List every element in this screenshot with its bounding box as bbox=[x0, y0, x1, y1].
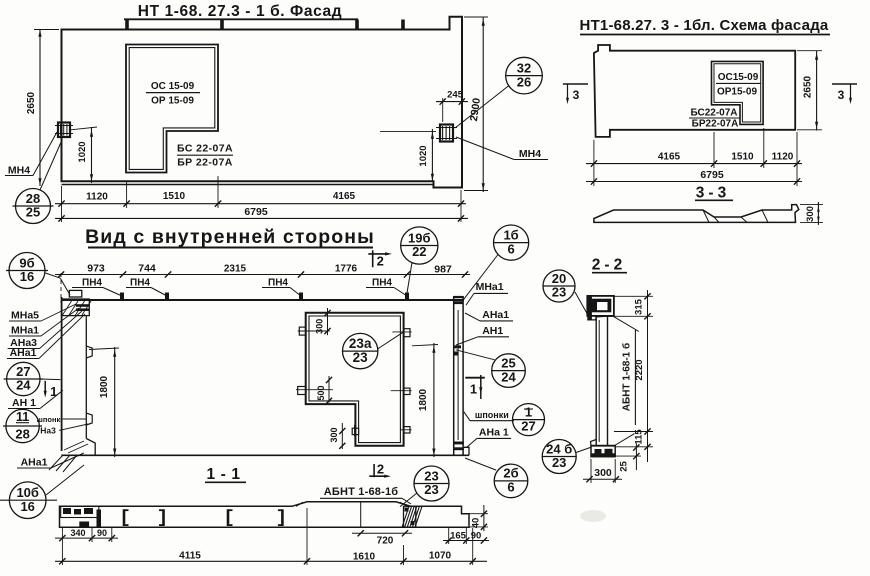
svg-text:6795: 6795 bbox=[700, 169, 724, 181]
svg-text:1-1: 1-1 bbox=[207, 466, 246, 483]
svg-text:23: 23 bbox=[552, 455, 566, 470]
svg-text:40: 40 bbox=[471, 518, 482, 529]
svg-text:973: 973 bbox=[87, 262, 105, 274]
svg-text:АНа 1: АНа 1 bbox=[479, 427, 509, 439]
svg-text:АБНТ 1-68-1 б: АБНТ 1-68-1 б bbox=[621, 343, 633, 411]
svg-text:24: 24 bbox=[501, 369, 516, 384]
svg-text:23: 23 bbox=[424, 482, 438, 497]
svg-text:АНа1: АНа1 bbox=[10, 347, 37, 359]
svg-text:2: 2 bbox=[377, 462, 384, 477]
svg-text:3-3: 3-3 bbox=[696, 185, 730, 202]
svg-text:24 б: 24 б bbox=[546, 441, 572, 456]
svg-text:6795: 6795 bbox=[244, 206, 268, 218]
svg-text:МН4: МН4 bbox=[519, 148, 541, 160]
svg-text:2650: 2650 bbox=[26, 91, 37, 114]
svg-text:1776: 1776 bbox=[335, 263, 358, 274]
svg-text:115: 115 bbox=[633, 429, 644, 445]
svg-text:БС 22-07А: БС 22-07А bbox=[177, 143, 233, 155]
svg-text:300: 300 bbox=[594, 467, 612, 479]
svg-text:315: 315 bbox=[634, 298, 645, 315]
svg-text:11: 11 bbox=[16, 410, 29, 424]
svg-text:1800: 1800 bbox=[99, 375, 110, 398]
svg-text:2б: 2б bbox=[503, 466, 518, 481]
svg-text:ОС 15-09: ОС 15-09 bbox=[151, 81, 195, 92]
svg-text:4165: 4165 bbox=[333, 191, 356, 202]
svg-text:340: 340 bbox=[70, 528, 85, 538]
svg-text:БС22-07А: БС22-07А bbox=[690, 108, 737, 119]
svg-text:ОР 15-09: ОР 15-09 bbox=[151, 96, 194, 107]
svg-text:23: 23 bbox=[552, 285, 566, 300]
svg-text:90: 90 bbox=[97, 528, 107, 538]
svg-text:32: 32 bbox=[517, 60, 531, 75]
svg-text:ПН4: ПН4 bbox=[82, 278, 102, 289]
svg-text:1800: 1800 bbox=[418, 388, 429, 411]
svg-text:26: 26 bbox=[517, 74, 531, 89]
svg-text:ПН4: ПН4 bbox=[268, 278, 288, 289]
svg-text:1120: 1120 bbox=[86, 192, 108, 203]
svg-text:1: 1 bbox=[525, 404, 532, 419]
svg-text:1070: 1070 bbox=[429, 551, 452, 562]
svg-text:АН 1: АН 1 bbox=[12, 397, 36, 409]
svg-text:2220: 2220 bbox=[634, 359, 645, 380]
svg-text:987: 987 bbox=[434, 264, 452, 276]
svg-text:БР 22-07А: БР 22-07А bbox=[177, 157, 233, 169]
svg-text:1510: 1510 bbox=[731, 152, 754, 163]
svg-text:Вид с внутренней стороны: Вид с внутренней стороны bbox=[85, 226, 375, 248]
svg-text:22: 22 bbox=[412, 244, 426, 259]
svg-text:28: 28 bbox=[15, 427, 29, 442]
svg-text:300: 300 bbox=[315, 319, 325, 334]
svg-text:1020: 1020 bbox=[77, 141, 88, 162]
svg-text:БР22-07А: БР22-07А bbox=[692, 119, 739, 130]
svg-text:шпонкi: шпонкi bbox=[37, 415, 63, 424]
svg-text:19б: 19б bbox=[408, 230, 431, 245]
svg-text:4165: 4165 bbox=[658, 152, 681, 163]
svg-text:2650: 2650 bbox=[803, 75, 814, 98]
svg-text:ОР15-09: ОР15-09 bbox=[717, 87, 757, 98]
svg-text:23а: 23а bbox=[349, 336, 372, 351]
svg-text:24: 24 bbox=[16, 378, 31, 393]
svg-text:1120: 1120 bbox=[772, 152, 794, 163]
svg-text:6: 6 bbox=[507, 241, 514, 256]
svg-text:25: 25 bbox=[619, 461, 630, 472]
svg-text:шпонки: шпонки bbox=[475, 410, 509, 420]
svg-text:4115: 4115 bbox=[179, 551, 201, 562]
svg-text:165: 165 bbox=[450, 531, 467, 542]
svg-text:1б: 1б bbox=[503, 227, 518, 242]
svg-text:ОС15-09: ОС15-09 bbox=[718, 72, 759, 83]
svg-text:ПН4: ПН4 bbox=[130, 278, 150, 289]
svg-text:2-2: 2-2 bbox=[592, 257, 626, 274]
svg-text:АН1: АН1 bbox=[482, 325, 503, 337]
svg-text:ПН4: ПН4 bbox=[372, 278, 392, 289]
svg-text:НТ 1-68. 27.3 - 1 б. Фасад: НТ 1-68. 27.3 - 1 б. Фасад bbox=[138, 3, 342, 20]
svg-text:27: 27 bbox=[521, 418, 535, 433]
svg-text:АБНТ 1-68-1б: АБНТ 1-68-1б bbox=[324, 486, 399, 498]
svg-text:9б: 9б bbox=[19, 255, 34, 270]
svg-text:3: 3 bbox=[838, 88, 845, 102]
svg-text:744: 744 bbox=[138, 262, 156, 274]
svg-text:25: 25 bbox=[26, 205, 40, 220]
svg-text:МНа5: МНа5 bbox=[11, 310, 39, 322]
svg-text:500: 500 bbox=[316, 385, 326, 400]
svg-text:1: 1 bbox=[470, 382, 477, 397]
svg-text:1510: 1510 bbox=[163, 191, 186, 202]
svg-text:23: 23 bbox=[353, 350, 369, 365]
svg-text:На3: На3 bbox=[40, 426, 56, 436]
svg-text:1020: 1020 bbox=[418, 145, 429, 166]
svg-text:6: 6 bbox=[507, 480, 514, 495]
svg-text:3: 3 bbox=[573, 88, 580, 102]
svg-text:НТ1-68.27. 3 - 1бл. Схема фаса: НТ1-68.27. 3 - 1бл. Схема фасада bbox=[580, 17, 829, 34]
svg-text:МН4: МН4 bbox=[8, 165, 30, 177]
svg-text:720: 720 bbox=[377, 536, 394, 547]
svg-text:10б: 10б bbox=[16, 485, 39, 500]
svg-text:1610: 1610 bbox=[353, 552, 376, 563]
svg-text:300: 300 bbox=[805, 206, 816, 222]
svg-text:25: 25 bbox=[501, 355, 515, 370]
svg-text:300: 300 bbox=[329, 427, 339, 442]
svg-text:28: 28 bbox=[26, 191, 40, 206]
svg-text:16: 16 bbox=[20, 499, 34, 514]
svg-text:245: 245 bbox=[447, 90, 464, 101]
svg-text:20: 20 bbox=[552, 271, 566, 286]
svg-text:МНа1: МНа1 bbox=[11, 325, 39, 337]
svg-text:23: 23 bbox=[424, 468, 438, 483]
svg-text:1: 1 bbox=[50, 384, 57, 399]
svg-text:МНа1: МНа1 bbox=[476, 281, 504, 293]
svg-text:16: 16 bbox=[20, 269, 34, 284]
svg-text:АНа1: АНа1 bbox=[482, 309, 509, 321]
svg-text:2: 2 bbox=[377, 254, 384, 269]
svg-text:АНа1: АНа1 bbox=[21, 456, 48, 468]
svg-text:2315: 2315 bbox=[224, 263, 247, 274]
svg-text:27: 27 bbox=[16, 364, 30, 379]
